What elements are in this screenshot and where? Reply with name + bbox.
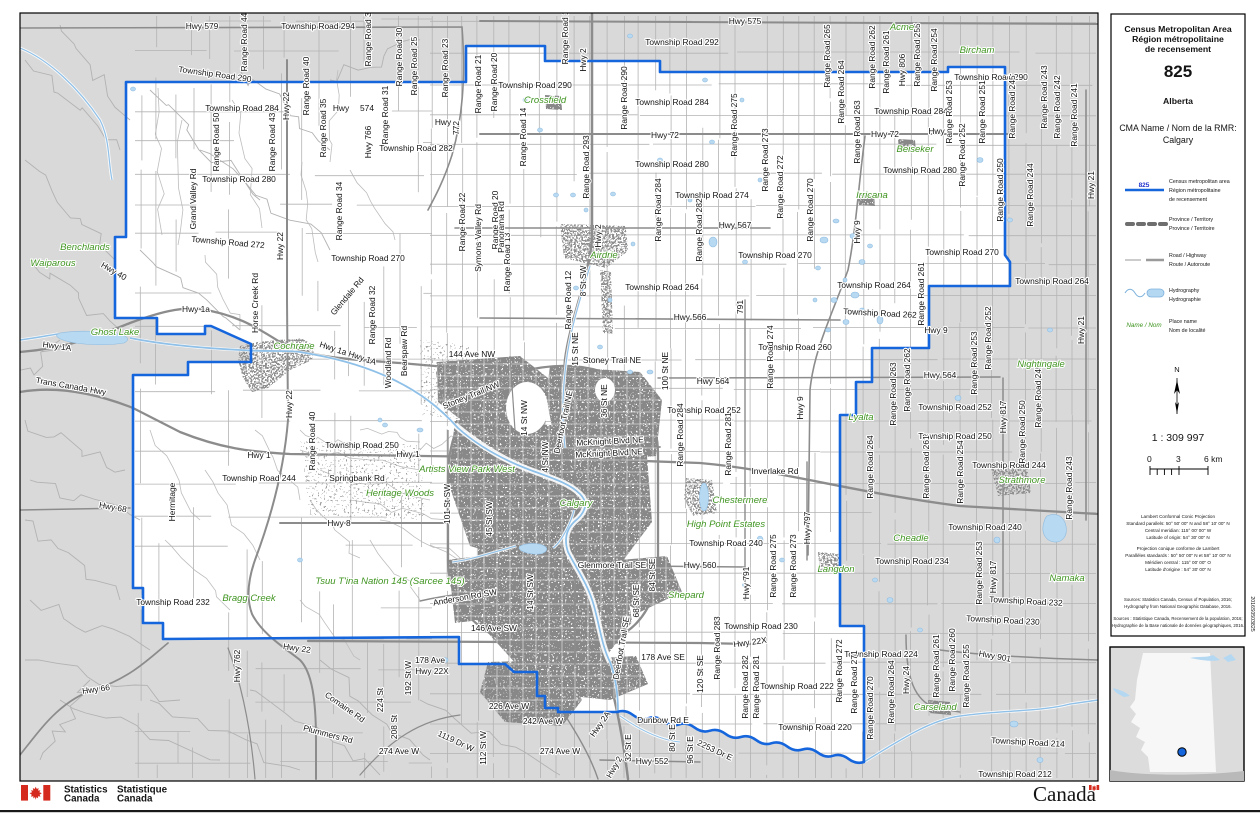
svg-text:1 : 309 997: 1 : 309 997	[1152, 432, 1205, 444]
svg-text:Range Road 262: Range Road 262	[867, 25, 877, 89]
svg-text:Bragg Creek: Bragg Creek	[222, 593, 277, 604]
svg-text:Range Road 14: Range Road 14	[518, 107, 528, 166]
svg-text:80 St E: 80 St E	[667, 724, 677, 752]
svg-text:Standard parallels: 50° 50' 00: Standard parallels: 50° 50' 00" N and 58…	[1126, 521, 1229, 526]
svg-text:Strathmore: Strathmore	[999, 475, 1046, 486]
svg-text:Range Road 260: Range Road 260	[947, 628, 957, 692]
svg-text:Range Road 40: Range Road 40	[307, 411, 317, 470]
svg-text:N: N	[1174, 365, 1179, 374]
svg-text:Calgary: Calgary	[1163, 135, 1194, 145]
svg-text:Stoney Trail NE: Stoney Trail NE	[583, 355, 642, 365]
svg-text:Census metropolitan area: Census metropolitan area	[1169, 179, 1230, 185]
svg-text:Range Road 283: Range Road 283	[712, 616, 722, 680]
svg-text:Range Road 261: Range Road 261	[921, 435, 931, 499]
svg-text:Hwy 797: Hwy 797	[802, 511, 812, 544]
svg-text:Range Road 263: Range Road 263	[888, 362, 898, 426]
svg-text:Township Road 240: Township Road 240	[948, 522, 1022, 532]
svg-text:CMA Name / Nom de la RMR:: CMA Name / Nom de la RMR:	[1119, 123, 1236, 133]
svg-text:Parallèles standards : 50° 50': Parallèles standards : 50° 50' 00" N et …	[1125, 553, 1230, 558]
svg-text:Hwy 2: Hwy 2	[593, 224, 603, 248]
svg-text:Township Road 240: Township Road 240	[689, 538, 763, 548]
svg-text:120 St SE: 120 St SE	[695, 655, 705, 693]
svg-text:Horse Creek Rd: Horse Creek Rd	[250, 273, 260, 333]
svg-text:Hwy 72: Hwy 72	[871, 129, 899, 139]
svg-text:de recensement: de recensement	[1169, 197, 1208, 203]
svg-text:Range Road 262: Range Road 262	[902, 348, 912, 412]
svg-text:14 St NW: 14 St NW	[519, 400, 529, 436]
svg-text:Beiseker: Beiseker	[897, 144, 935, 155]
svg-text:Range Road 243: Range Road 243	[1064, 456, 1074, 520]
svg-text:Range Road 253: Range Road 253	[944, 80, 954, 144]
svg-text:36 St NE: 36 St NE	[599, 384, 609, 418]
svg-text:96 St E: 96 St E	[685, 736, 695, 764]
svg-text:Township Road 230: Township Road 230	[724, 621, 798, 631]
svg-text:Range Road 272: Range Road 272	[775, 155, 785, 219]
svg-text:Hwy 552: Hwy 552	[636, 756, 669, 766]
svg-text:Hydrographie de la Base nation: Hydrographie de la Base nationale de don…	[1112, 623, 1244, 628]
svg-text:Range Road 271: Range Road 271	[849, 650, 859, 714]
svg-text:Range Road 272: Range Road 272	[834, 639, 844, 703]
svg-text:Hydrography: Hydrography	[1169, 288, 1200, 294]
svg-text:Hwy 9: Hwy 9	[795, 396, 805, 420]
svg-text:Range Road 244: Range Road 244	[1025, 163, 1035, 227]
svg-text:Range Road 250: Range Road 250	[1017, 400, 1027, 464]
svg-text:Hwy 560: Hwy 560	[684, 560, 717, 570]
svg-text:Range Road 281: Range Road 281	[751, 655, 761, 719]
svg-text:Central meridian: 115° 00' 00": Central meridian: 115° 00' 00" W	[1145, 528, 1212, 533]
svg-text:Chestermere: Chestermere	[713, 495, 768, 506]
svg-text:Hwy 8: Hwy 8	[327, 518, 351, 528]
svg-text:100 St NE: 100 St NE	[660, 352, 670, 391]
svg-text:Sources: Statistics Canada, Ce: Sources: Statistics Canada, Census of Po…	[1124, 597, 1232, 602]
svg-text:Township Road 284: Township Road 284	[205, 103, 279, 113]
svg-text:Hwy 72: Hwy 72	[651, 130, 679, 140]
svg-text:825: 825	[1164, 62, 1192, 81]
svg-text:4 St NW: 4 St NW	[540, 441, 550, 472]
svg-text:Range Road 32: Range Road 32	[367, 285, 377, 344]
svg-text:Hwy: Hwy	[435, 117, 452, 127]
svg-text:Range Road 20: Range Road 20	[489, 52, 499, 111]
svg-text:Range Road 50: Range Road 50	[211, 112, 221, 171]
svg-text:Range Road 275: Range Road 275	[768, 534, 778, 598]
svg-text:Census Metropolitan Area: Census Metropolitan Area	[1124, 24, 1231, 34]
svg-text:Range Road 243: Range Road 243	[1039, 65, 1049, 129]
svg-text:Township Road 274: Township Road 274	[675, 190, 749, 200]
svg-text:Hwy 22: Hwy 22	[281, 92, 291, 120]
svg-text:Township Road 270: Township Road 270	[925, 247, 999, 257]
svg-text:Heritage Woods: Heritage Woods	[366, 488, 434, 499]
svg-text:Glenmore Trail SE: Glenmore Trail SE	[578, 560, 647, 570]
svg-text:Canada: Canada	[64, 794, 100, 805]
svg-text:Cheadle: Cheadle	[893, 533, 928, 544]
svg-text:226 Ave W: 226 Ave W	[489, 701, 529, 711]
svg-text:Township Road 234: Township Road 234	[875, 556, 949, 566]
svg-text:Hwy 566: Hwy 566	[674, 312, 707, 322]
svg-text:Township Road 252: Township Road 252	[918, 402, 992, 412]
svg-text:Latitude of origin: 54° 30' 00: Latitude of origin: 54° 30' 00" N	[1146, 535, 1209, 540]
svg-text:Hwy 817: Hwy 817	[998, 400, 1008, 433]
svg-text:Carseland: Carseland	[913, 702, 957, 713]
svg-text:Range Road 30: Range Road 30	[394, 27, 404, 86]
svg-text:Bircham: Bircham	[960, 45, 995, 56]
svg-text:Township Road 290: Township Road 290	[954, 72, 1028, 82]
svg-text:Benchlands: Benchlands	[60, 242, 110, 253]
svg-text:Range Road 264: Range Road 264	[836, 60, 846, 124]
svg-text:Province / Territoire: Province / Territoire	[1169, 226, 1215, 232]
svg-text:Bearspaw Rd: Bearspaw Rd	[399, 326, 409, 377]
svg-text:Range Road 273: Range Road 273	[760, 128, 770, 192]
svg-text:Range Road 22: Range Road 22	[457, 192, 467, 251]
svg-text:Canada: Canada	[1033, 782, 1097, 806]
svg-text:Range Road 31: Range Road 31	[380, 85, 390, 144]
svg-text:Hwy 22: Hwy 22	[284, 390, 294, 418]
svg-text:Inverlake Rd: Inverlake Rd	[751, 466, 798, 476]
svg-text:Namaka: Namaka	[1049, 573, 1084, 584]
svg-text:Hwy 24: Hwy 24	[901, 666, 911, 694]
svg-text:Hwy 564: Hwy 564	[697, 376, 730, 386]
svg-text:Range Road 12: Range Road 12	[560, 5, 570, 64]
svg-text:Shepard: Shepard	[668, 590, 705, 601]
svg-text:274 Ave W: 274 Ave W	[379, 746, 419, 756]
svg-text:Waiparous: Waiparous	[30, 258, 75, 269]
svg-text:Airdrie: Airdrie	[589, 250, 617, 261]
svg-text:3: 3	[1176, 454, 1181, 464]
svg-text:Range Road 254: Range Road 254	[929, 28, 939, 92]
svg-text:8 St SW: 8 St SW	[578, 266, 588, 297]
svg-text:Township Road 292: Township Road 292	[645, 37, 719, 47]
svg-text:Langdon: Langdon	[818, 564, 855, 575]
svg-text:0: 0	[1147, 454, 1152, 464]
svg-text:Township Road 280: Township Road 280	[883, 165, 957, 175]
svg-text:Hwy 9: Hwy 9	[852, 220, 862, 244]
svg-text:Hwy 2: Hwy 2	[578, 48, 588, 72]
svg-text:Hermitage: Hermitage	[167, 482, 177, 521]
svg-text:Range Road 253: Range Road 253	[974, 541, 984, 605]
svg-text:Range Road 273: Range Road 273	[788, 534, 798, 598]
svg-text:Crossfield: Crossfield	[524, 95, 567, 106]
svg-text:Range Road 43: Range Road 43	[267, 112, 277, 171]
svg-text:Irricana: Irricana	[856, 190, 888, 201]
svg-text:Township Road 244: Township Road 244	[222, 473, 296, 483]
svg-text:224 St: 224 St	[375, 687, 385, 712]
svg-text:Hwy 791: Hwy 791	[741, 566, 751, 599]
svg-text:Range Road 35: Range Road 35	[318, 98, 328, 157]
svg-text:Nom de localité: Nom de localité	[1169, 328, 1206, 334]
svg-text:Range Road 290: Range Road 290	[619, 66, 629, 130]
svg-text:Hwy 567: Hwy 567	[719, 220, 752, 230]
svg-text:Range Road 265: Range Road 265	[822, 24, 832, 88]
svg-text:Range Road 44: Range Road 44	[239, 12, 249, 71]
svg-text:6 km: 6 km	[1204, 454, 1222, 464]
svg-text:Range Road 264: Range Road 264	[865, 435, 875, 499]
svg-text:Lyalta: Lyalta	[848, 412, 873, 423]
svg-text:Range Road 263: Range Road 263	[852, 100, 862, 164]
svg-text:Hwy 579: Hwy 579	[186, 21, 219, 31]
svg-text:178 Ave: 178 Ave	[415, 655, 445, 665]
svg-text:Range Road 25: Range Road 25	[409, 36, 419, 95]
svg-text:Hwy 1: Hwy 1	[396, 449, 420, 459]
svg-text:Range Road 23: Range Road 23	[440, 38, 450, 97]
svg-text:Range Road 293: Range Road 293	[581, 135, 591, 199]
svg-text:Township Road 212: Township Road 212	[978, 769, 1052, 779]
svg-text:Range Road 261: Range Road 261	[931, 634, 941, 698]
svg-text:Township Road 264: Township Road 264	[837, 280, 911, 290]
svg-text:Panorama Rd: Panorama Rd	[496, 201, 506, 253]
svg-text:2016S0503825: 2016S0503825	[1249, 596, 1255, 631]
svg-text:Township Road 282: Township Road 282	[379, 143, 453, 153]
svg-text:Hydrography from National Geog: Hydrography from National Geographic Dat…	[1124, 604, 1231, 609]
svg-text:Symons Valley Rd: Symons Valley Rd	[473, 204, 483, 272]
svg-text:Range Road 245: Range Road 245	[1033, 364, 1043, 428]
svg-text:192 St W: 192 St W	[403, 661, 413, 696]
svg-text:Range Road 274: Range Road 274	[765, 325, 775, 389]
svg-text:Range Road 270: Range Road 270	[805, 178, 815, 242]
svg-text:Hwy 564: Hwy 564	[924, 370, 957, 380]
svg-text:Township Road 280: Township Road 280	[202, 174, 276, 184]
svg-text:Township Road 290: Township Road 290	[498, 80, 572, 90]
svg-text:Province / Territory: Province / Territory	[1169, 217, 1213, 223]
svg-text:Hwy 9: Hwy 9	[924, 325, 948, 335]
svg-text:Range Road 250: Range Road 250	[995, 158, 1005, 222]
svg-text:Latitude d'origine : 54° 30' 0: Latitude d'origine : 54° 30' 00" N	[1145, 567, 1211, 572]
svg-text:Hwy: Hwy	[333, 103, 350, 113]
svg-text:Lambert Conformal Conic Projec: Lambert Conformal Conic Projection	[1141, 514, 1215, 519]
svg-text:Range Road 264: Range Road 264	[886, 660, 896, 724]
svg-text:Range Road 32: Range Road 32	[363, 7, 373, 66]
svg-text:Calgary: Calgary	[560, 498, 594, 509]
svg-text:146 Ave SW: 146 Ave SW	[471, 623, 517, 633]
svg-text:Hwy 1a: Hwy 1a	[182, 304, 210, 314]
svg-text:Grand Valley Rd: Grand Valley Rd	[188, 168, 198, 229]
svg-text:45 St SW: 45 St SW	[484, 501, 494, 536]
svg-text:274 Ave W: 274 Ave W	[540, 746, 580, 756]
svg-text:Hwy 1: Hwy 1	[247, 450, 271, 460]
svg-text:Hwy 817: Hwy 817	[988, 560, 998, 593]
svg-text:791: 791	[735, 300, 745, 314]
svg-text:Route / Autoroute: Route / Autoroute	[1169, 262, 1210, 268]
svg-text:Range Road 282: Range Road 282	[740, 655, 750, 719]
svg-text:Township Road 294: Township Road 294	[281, 21, 355, 31]
svg-text:Township Road 264: Township Road 264	[1015, 276, 1089, 286]
svg-text:178 Ave SE: 178 Ave SE	[641, 652, 685, 662]
svg-text:112 St W: 112 St W	[478, 731, 488, 765]
svg-text:68 St SE: 68 St SE	[631, 584, 641, 617]
svg-text:Township Road 270: Township Road 270	[738, 250, 812, 260]
svg-text:Range Road 241: Range Road 241	[1069, 83, 1079, 147]
svg-text:Township Road 280: Township Road 280	[635, 159, 709, 169]
svg-text:144 Ave NW: 144 Ave NW	[449, 349, 495, 359]
svg-text:Place name: Place name	[1169, 319, 1197, 325]
svg-text:Hwy 766: Hwy 766	[363, 125, 373, 158]
svg-text:Range Road 261: Range Road 261	[916, 262, 926, 326]
svg-text:Hwy 21: Hwy 21	[1086, 171, 1096, 199]
svg-text:Artists View Park West: Artists View Park West	[418, 464, 515, 475]
svg-text:Projection conique conforme de: Projection conique conforme de Lambert	[1137, 546, 1220, 551]
svg-text:Range Road 254: Range Road 254	[955, 440, 965, 504]
svg-text:Hwy 22X: Hwy 22X	[415, 666, 449, 676]
svg-text:Sources : Statistique Canada,: Sources : Statistique Canada, Recensemen…	[1113, 616, 1242, 621]
svg-text:Township Road 244: Township Road 244	[972, 460, 1046, 470]
svg-text:Woodland Rd: Woodland Rd	[383, 337, 393, 388]
svg-text:Alberta: Alberta	[1163, 96, 1193, 106]
svg-text:Township Road 264: Township Road 264	[625, 282, 699, 292]
svg-text:Road / Highway: Road / Highway	[1169, 253, 1207, 259]
svg-text:Dunbow Rd E: Dunbow Rd E	[637, 715, 689, 725]
svg-text:de recensement: de recensement	[1145, 44, 1211, 54]
svg-text:14 St SW: 14 St SW	[525, 574, 535, 609]
svg-text:Range Road 255: Range Road 255	[961, 644, 971, 708]
svg-text:825: 825	[1139, 182, 1150, 189]
svg-text:Township Road 250: Township Road 250	[325, 440, 399, 450]
svg-text:Range Road 252: Range Road 252	[957, 123, 967, 187]
svg-text:Hwy 575: Hwy 575	[729, 16, 762, 26]
svg-text:Range Road 40: Range Road 40	[301, 56, 311, 115]
svg-text:Hwy 21: Hwy 21	[1076, 316, 1086, 344]
svg-text:Tsuu T'ina Nation 145 (Sarcee: Tsuu T'ina Nation 145 (Sarcee 145)	[315, 576, 464, 587]
svg-text:Range Road 261: Range Road 261	[881, 30, 891, 94]
svg-text:Région métropolitaine: Région métropolitaine	[1132, 34, 1224, 44]
svg-text:208 St: 208 St	[389, 714, 399, 739]
svg-text:Township Road 270: Township Road 270	[331, 253, 405, 263]
svg-text:574: 574	[360, 103, 374, 113]
svg-text:Nightingale: Nightingale	[1017, 359, 1065, 370]
svg-text:Hydrographie: Hydrographie	[1169, 297, 1201, 303]
svg-text:Range Road 252: Range Road 252	[983, 306, 993, 370]
svg-text:Région métropolitaine: Région métropolitaine	[1169, 188, 1221, 194]
svg-text:Range Road 12: Range Road 12	[563, 270, 573, 329]
svg-text:32 St E: 32 St E	[623, 734, 633, 762]
svg-text:Canada: Canada	[117, 794, 153, 805]
svg-text:Hwy 22: Hwy 22	[275, 232, 285, 260]
svg-text:101 St SW: 101 St SW	[442, 484, 452, 524]
svg-text:Range Road 245: Range Road 245	[1007, 75, 1017, 139]
svg-text:Range Road 21: Range Road 21	[473, 54, 483, 113]
svg-text:Range Road 281: Range Road 281	[723, 412, 733, 476]
svg-text:Name / Nom: Name / Nom	[1126, 322, 1161, 329]
svg-text:Range Road 34: Range Road 34	[334, 181, 344, 240]
svg-text:Hwy 806: Hwy 806	[897, 53, 907, 86]
svg-text:Township Road 220: Township Road 220	[778, 722, 852, 732]
svg-text:Range Road 284: Range Road 284	[653, 178, 663, 242]
svg-text:Hwy 762: Hwy 762	[232, 649, 242, 682]
svg-text:Cochrane: Cochrane	[273, 341, 314, 352]
svg-text:High Point Estates: High Point Estates	[687, 519, 765, 530]
svg-text:Méridien central : 115° 00' 00: Méridien central : 115° 00' 00" O	[1145, 560, 1211, 565]
svg-text:Springbank Rd: Springbank Rd	[329, 473, 385, 483]
svg-text:242 Ave W: 242 Ave W	[523, 716, 563, 726]
svg-text:Range Road 253: Range Road 253	[969, 331, 979, 395]
svg-text:772: 772	[451, 121, 461, 135]
svg-text:Township Road 284: Township Road 284	[874, 106, 948, 116]
svg-text:Range Road 282: Range Road 282	[694, 198, 704, 262]
svg-text:15 St NE: 15 St NE	[570, 332, 580, 366]
svg-text:Range Road 270: Range Road 270	[865, 676, 875, 740]
svg-text:Range Road 275: Range Road 275	[729, 93, 739, 157]
svg-text:Range Road 242: Range Road 242	[1052, 75, 1062, 139]
svg-text:84 St SE: 84 St SE	[647, 558, 657, 591]
svg-text:Acme: Acme	[889, 22, 914, 33]
svg-text:Township Road 222: Township Road 222	[760, 681, 834, 691]
svg-text:Township Road 232: Township Road 232	[136, 597, 210, 607]
svg-text:Range Road 284: Range Road 284	[675, 403, 685, 467]
svg-text:Township Road 284: Township Road 284	[635, 97, 709, 107]
svg-text:Ghost Lake: Ghost Lake	[91, 327, 140, 338]
svg-text:Range Road 251: Range Road 251	[977, 80, 987, 144]
